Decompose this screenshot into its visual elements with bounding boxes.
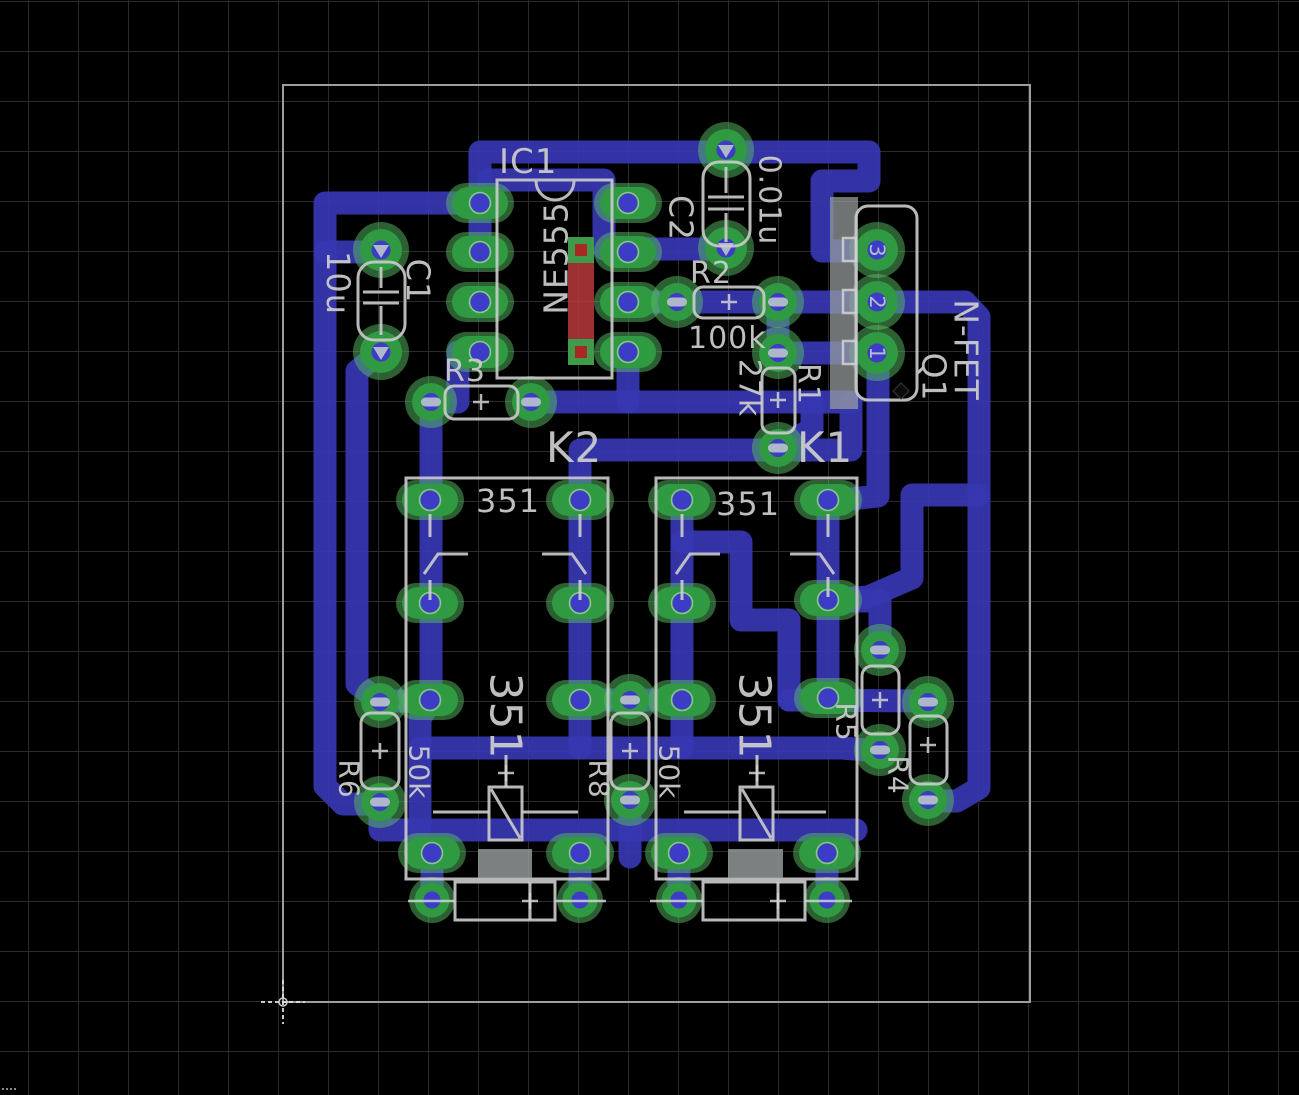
q1-pin-label: 3 (865, 243, 889, 256)
pcb-drawing: 3 2 1 IC1 NE555 C1 10u C2 0.01u R2 100k … (0, 0, 1299, 1095)
pad[interactable] (648, 680, 716, 720)
label-k2-ref: K2 (546, 423, 602, 472)
pad[interactable] (546, 833, 614, 873)
label-r2-ref: R2 (690, 256, 732, 291)
pad[interactable] (793, 833, 861, 873)
k2-tab (478, 849, 532, 878)
label-c1-value: 10u (319, 251, 357, 315)
label-k2-type-side: 351 (480, 673, 531, 760)
pad[interactable] (546, 680, 614, 720)
grid (0, 0, 1299, 1095)
label-k1-ref: K1 (797, 423, 853, 472)
q1-pin-label: 1 (865, 346, 889, 359)
label-r6-ref: R6 (333, 759, 366, 798)
label-r1-value: 27k (732, 359, 767, 418)
pad[interactable] (854, 624, 906, 676)
label-k1-type-side: 351 (729, 673, 780, 760)
label-c1-ref: C1 (399, 259, 437, 304)
label-r6-value: 50k (403, 745, 436, 800)
label-r4-ref: R4 (882, 755, 915, 794)
label-c2-value: 0.01u (752, 155, 787, 246)
label-r8-value: 50k (653, 745, 686, 800)
label-c2-ref: C2 (662, 195, 701, 241)
pad[interactable] (446, 183, 514, 223)
pad[interactable] (505, 376, 557, 428)
smd-pad[interactable] (568, 339, 594, 365)
pad[interactable] (398, 833, 466, 873)
label-k1-type: 351 (716, 485, 780, 523)
label-ic1-value: NE555 (537, 201, 576, 315)
q1-pin-label: 2 (865, 295, 889, 308)
label-ic1-ref: IC1 (499, 142, 557, 182)
pad[interactable] (594, 183, 662, 223)
pad[interactable] (446, 232, 514, 272)
pad[interactable] (594, 232, 662, 272)
pad[interactable] (446, 282, 514, 322)
label-r3-ref: R3 (444, 354, 486, 389)
pcb-canvas: 3 2 1 IC1 NE555 C1 10u C2 0.01u R2 100k … (0, 0, 1299, 1095)
label-r5-ref: R5 (830, 702, 863, 741)
label-r8-ref: R8 (583, 759, 616, 798)
pad[interactable] (594, 332, 662, 372)
label-k2-type: 351 (476, 482, 540, 520)
label-r1-ref: R1 (791, 363, 826, 405)
label-q1-value: N-FET (947, 299, 986, 401)
k1-tab (728, 849, 783, 878)
label-r2-value: 100k (688, 321, 767, 356)
